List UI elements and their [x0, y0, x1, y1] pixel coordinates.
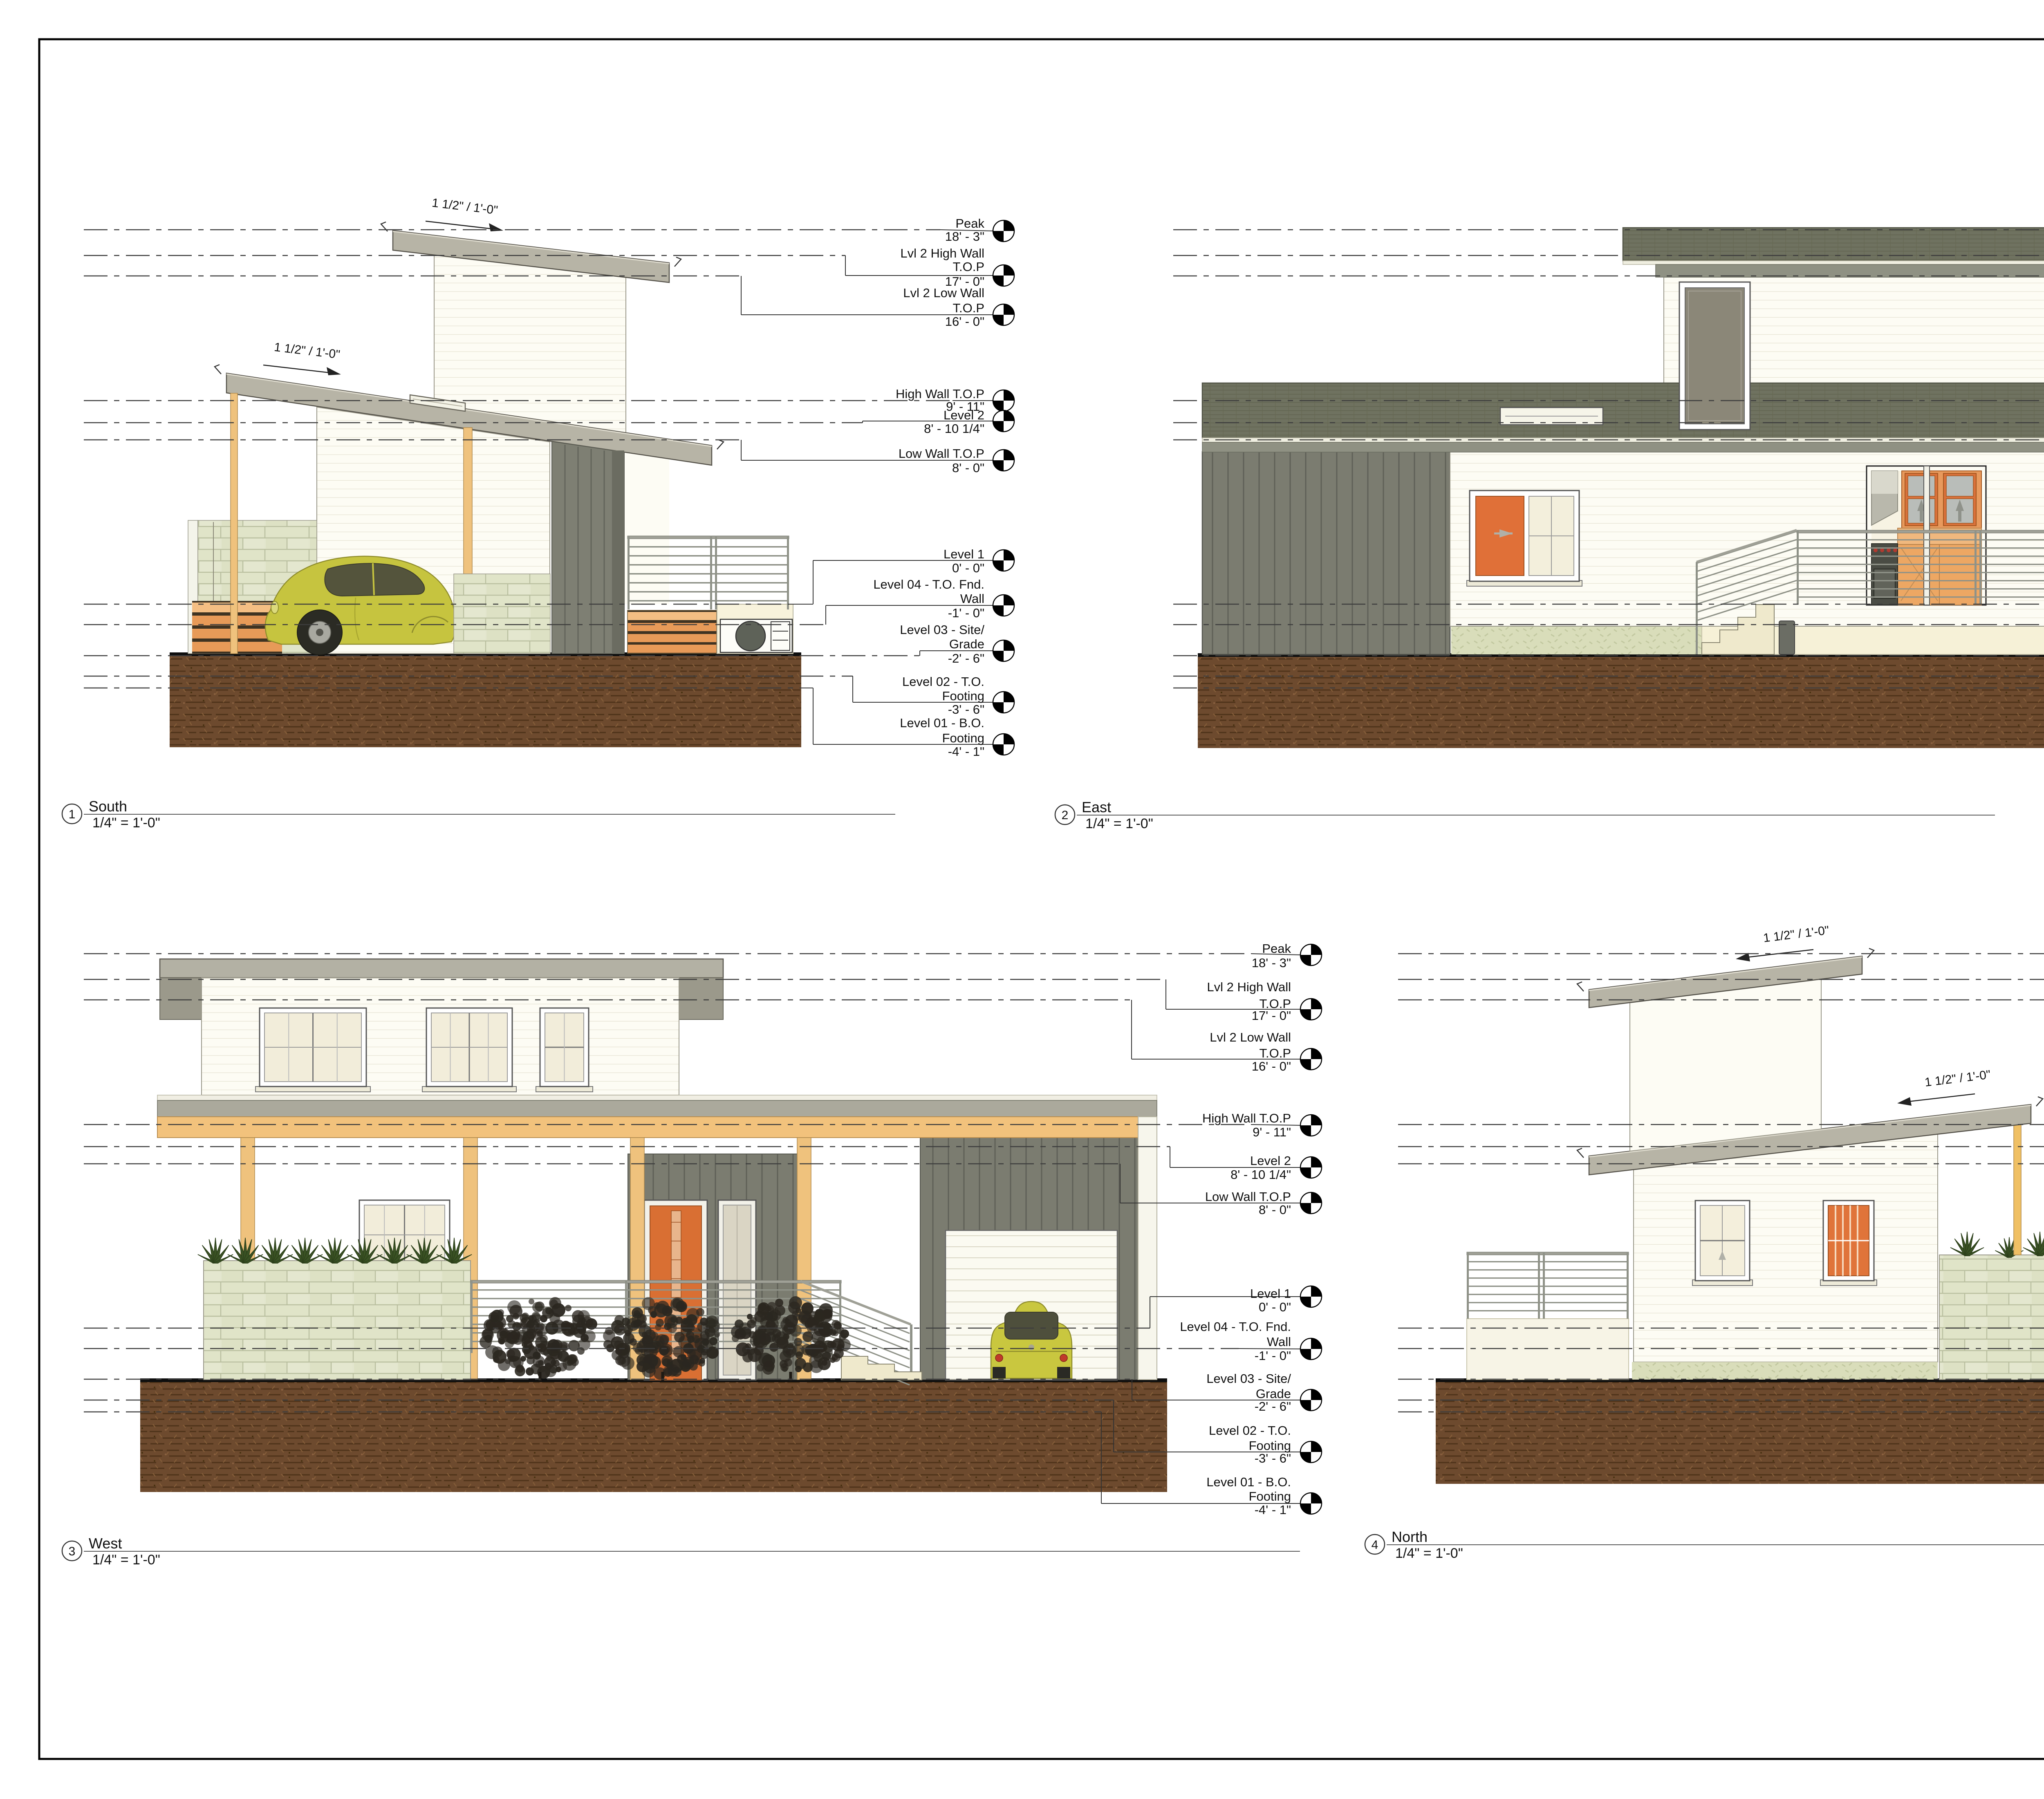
- svg-text:18' - 3": 18' - 3": [1252, 956, 1291, 970]
- svg-text:-3' - 6": -3' - 6": [948, 702, 984, 717]
- svg-text:1/4" = 1'-0": 1/4" = 1'-0": [1395, 1546, 1463, 1561]
- svg-text:1 1/2" / 1'-0": 1 1/2" / 1'-0": [273, 341, 341, 362]
- svg-text:1/4" = 1'-0": 1/4" = 1'-0": [92, 815, 160, 831]
- svg-text:High Wall T.O.P: High Wall T.O.P: [896, 387, 984, 401]
- svg-text:-4' - 1": -4' - 1": [1255, 1503, 1291, 1517]
- svg-text:1/4" = 1'-0": 1/4" = 1'-0": [1085, 816, 1153, 831]
- svg-text:Lvl 2 High Wall: Lvl 2 High Wall: [1207, 980, 1291, 994]
- svg-text:1/4" = 1'-0": 1/4" = 1'-0": [92, 1552, 160, 1568]
- svg-text:Level 1: Level 1: [944, 547, 984, 561]
- svg-text:-3' - 6": -3' - 6": [1255, 1451, 1291, 1465]
- svg-text:4: 4: [1372, 1538, 1378, 1552]
- svg-text:Grade: Grade: [949, 637, 984, 651]
- svg-text:9' - 11": 9' - 11": [1253, 1125, 1291, 1139]
- svg-text:16' - 0": 16' - 0": [945, 314, 984, 329]
- svg-text:Level 1: Level 1: [1250, 1286, 1291, 1301]
- svg-text:Footing: Footing: [1249, 1489, 1291, 1503]
- svg-text:Footing: Footing: [1249, 1438, 1291, 1453]
- svg-text:Level 01 - B.O.: Level 01 - B.O.: [900, 716, 984, 730]
- svg-text:1: 1: [69, 808, 76, 821]
- svg-text:Low Wall T.O.P: Low Wall T.O.P: [899, 446, 984, 461]
- svg-text:1 1/2" / 1'-0": 1 1/2" / 1'-0": [1762, 923, 1830, 945]
- svg-text:Peak: Peak: [955, 216, 984, 231]
- svg-text:South: South: [89, 798, 127, 815]
- svg-text:Wall: Wall: [1267, 1335, 1291, 1349]
- svg-text:High Wall T.O.P: High Wall T.O.P: [1202, 1111, 1291, 1125]
- svg-text:3: 3: [69, 1545, 76, 1558]
- svg-text:1 1/2" / 1'-0": 1 1/2" / 1'-0": [431, 196, 499, 217]
- svg-text:Level 03 - Site/: Level 03 - Site/: [1206, 1371, 1291, 1386]
- svg-text:Low Wall T.O.P: Low Wall T.O.P: [1205, 1190, 1291, 1204]
- svg-text:Wall: Wall: [960, 591, 984, 606]
- svg-text:T.O.P: T.O.P: [953, 260, 984, 274]
- svg-text:-2' - 6": -2' - 6": [1255, 1399, 1291, 1414]
- svg-text:-2' - 6": -2' - 6": [948, 651, 984, 665]
- svg-text:Level 04 - T.O. Fnd.: Level 04 - T.O. Fnd.: [873, 577, 984, 591]
- svg-text:-4' - 1": -4' - 1": [948, 744, 984, 759]
- svg-text:Level 02 - T.O.: Level 02 - T.O.: [902, 674, 984, 689]
- svg-text:Level 01 - B.O.: Level 01 - B.O.: [1206, 1475, 1291, 1489]
- svg-text:8' - 10 1/4": 8' - 10 1/4": [924, 421, 984, 436]
- svg-text:Level 2: Level 2: [944, 408, 984, 422]
- svg-text:8' - 0": 8' - 0": [1259, 1203, 1291, 1217]
- svg-text:Level 2: Level 2: [1250, 1154, 1291, 1168]
- svg-text:1 1/2" / 1'-0": 1 1/2" / 1'-0": [1924, 1068, 1991, 1089]
- svg-text:Level 03 - Site/: Level 03 - Site/: [900, 623, 984, 637]
- svg-text:East: East: [1082, 799, 1111, 815]
- svg-text:Level 02 - T.O.: Level 02 - T.O.: [1209, 1423, 1291, 1438]
- svg-text:8' - 0": 8' - 0": [952, 461, 984, 475]
- svg-text:North: North: [1392, 1528, 1428, 1545]
- svg-text:T.O.P: T.O.P: [953, 301, 984, 315]
- svg-text:Footing: Footing: [942, 689, 984, 703]
- svg-text:Footing: Footing: [942, 731, 984, 745]
- svg-text:Level 04 - T.O. Fnd.: Level 04 - T.O. Fnd.: [1180, 1320, 1291, 1334]
- svg-text:Lvl 2 Low Wall: Lvl 2 Low Wall: [1210, 1030, 1291, 1044]
- svg-text:-1' - 0": -1' - 0": [948, 606, 984, 620]
- svg-text:2: 2: [1062, 809, 1069, 822]
- svg-text:West: West: [89, 1535, 122, 1552]
- svg-text:-1' - 0": -1' - 0": [1255, 1349, 1291, 1363]
- svg-text:Grade: Grade: [1256, 1387, 1291, 1401]
- svg-text:Peak: Peak: [1262, 941, 1291, 956]
- svg-text:0' - 0": 0' - 0": [1259, 1300, 1291, 1314]
- svg-text:18' - 3": 18' - 3": [945, 229, 984, 244]
- svg-text:8' - 10 1/4": 8' - 10 1/4": [1230, 1167, 1291, 1182]
- svg-text:16' - 0": 16' - 0": [1252, 1059, 1291, 1073]
- svg-text:T.O.P: T.O.P: [1259, 1046, 1291, 1060]
- svg-text:17' - 0": 17' - 0": [1252, 1008, 1291, 1023]
- svg-text:Lvl 2 Low Wall: Lvl 2 Low Wall: [903, 286, 984, 300]
- svg-text:Lvl 2 High Wall: Lvl 2 High Wall: [900, 246, 984, 260]
- svg-text:0' - 0": 0' - 0": [952, 561, 984, 575]
